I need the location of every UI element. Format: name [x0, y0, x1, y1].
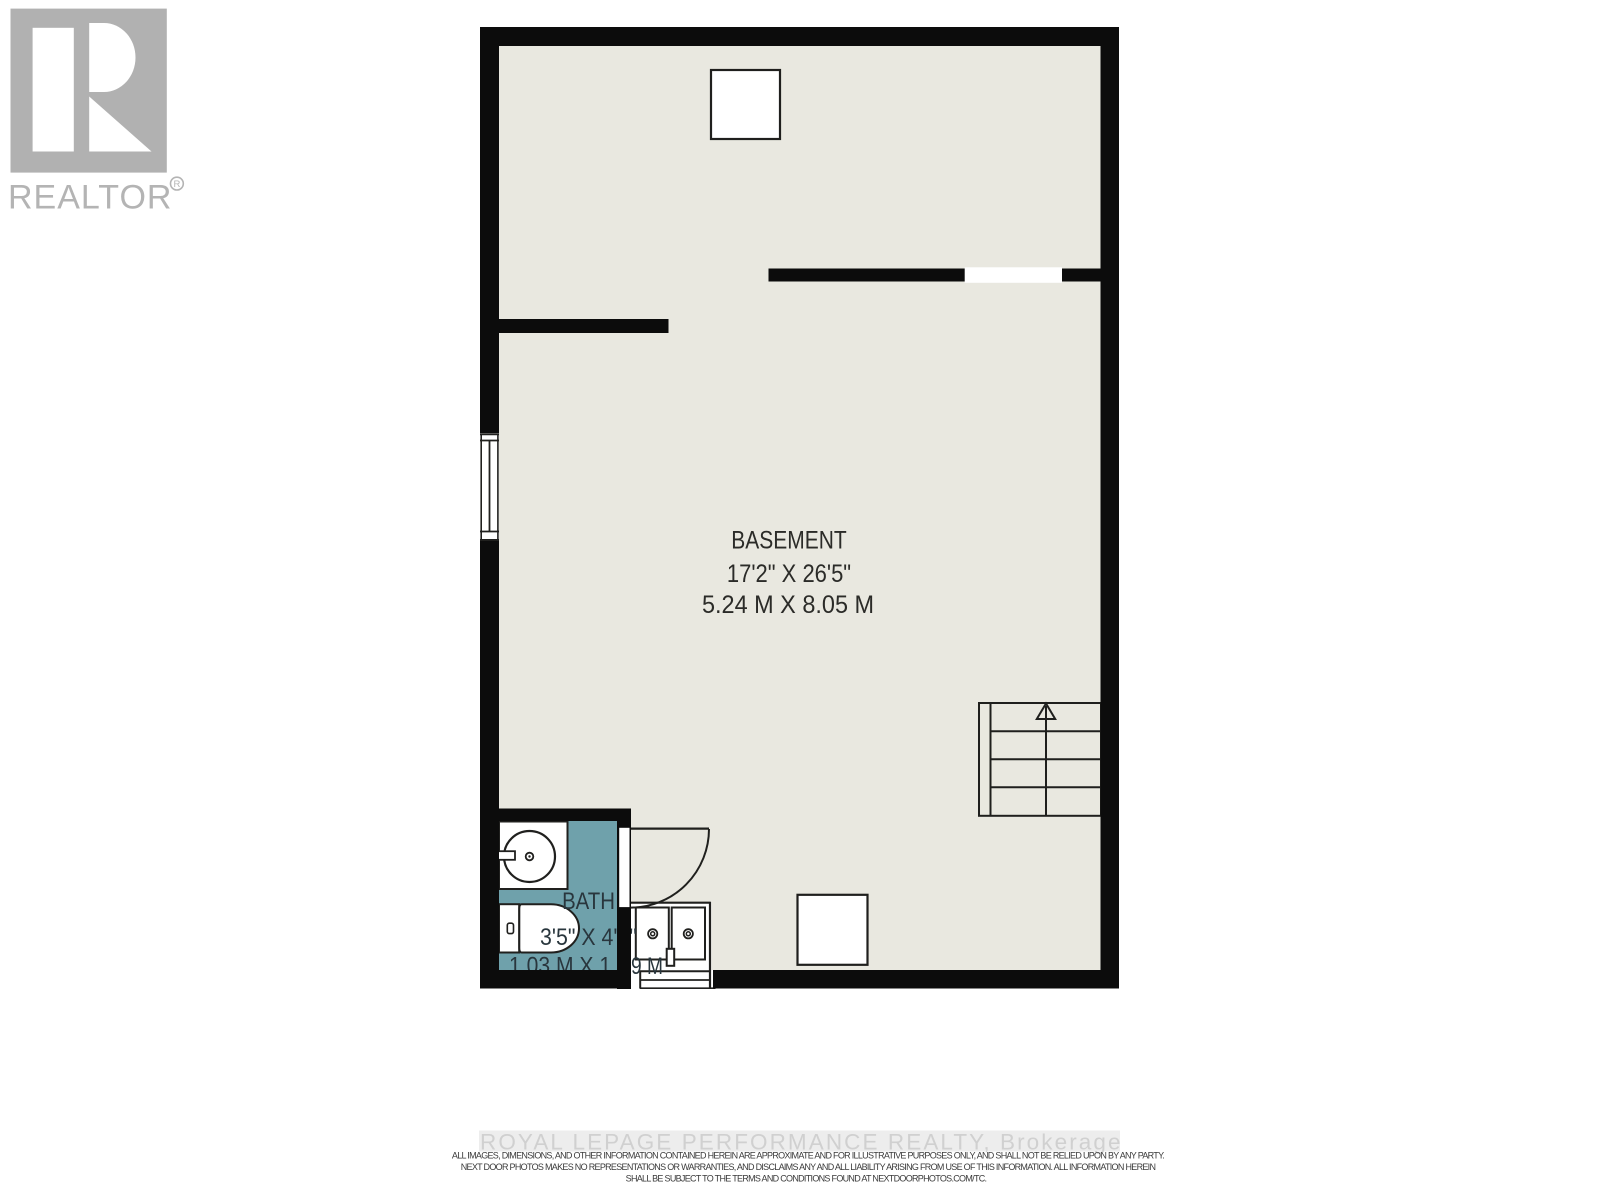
svg-text:REALTOR: REALTOR — [8, 179, 172, 217]
svg-text:5.24 M X 8.05 M: 5.24 M X 8.05 M — [702, 592, 874, 620]
svg-text:NEXT DOOR PHOTOS MAKES NO REPR: NEXT DOOR PHOTOS MAKES NO REPRESENTATION… — [461, 1162, 1156, 1172]
svg-text:BASEMENT: BASEMENT — [731, 526, 846, 554]
svg-text:9 M: 9 M — [631, 952, 663, 980]
svg-text:ALL IMAGES, DIMENSIONS, AND OT: ALL IMAGES, DIMENSIONS, AND OTHER INFORM… — [452, 1151, 1164, 1161]
svg-text:R: R — [173, 179, 180, 190]
svg-text:BATH: BATH — [562, 888, 615, 915]
svg-text:SHALL BE SUBJECT TO THE TERMS: SHALL BE SUBJECT TO THE TERMS AND CONDIT… — [626, 1173, 987, 1183]
svg-text:17'2" X 26'5": 17'2" X 26'5" — [727, 560, 851, 587]
